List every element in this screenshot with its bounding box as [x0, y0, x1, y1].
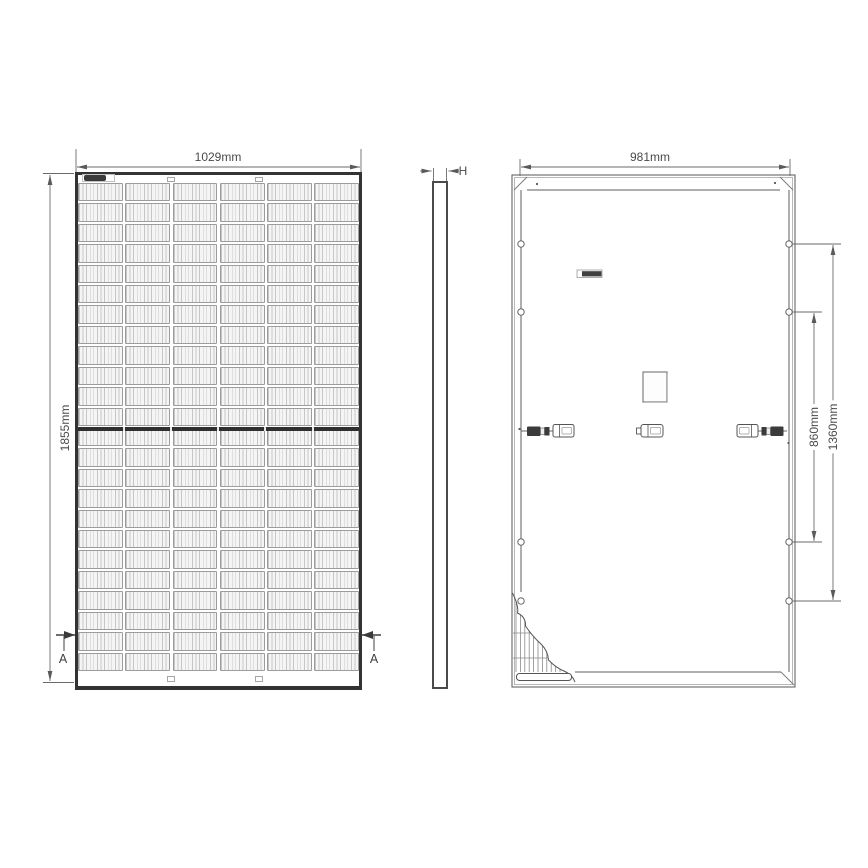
solar-cell — [267, 305, 312, 323]
solar-cell — [314, 285, 359, 303]
solar-cell — [78, 183, 123, 201]
solar-cell — [314, 489, 359, 507]
solar-cell — [125, 183, 170, 201]
solar-cell — [220, 550, 265, 568]
side-view-profile — [433, 182, 447, 688]
solar-cell — [78, 510, 123, 528]
solar-cell — [267, 632, 312, 650]
section-marker-label-right: A — [370, 653, 378, 666]
solar-cell — [314, 244, 359, 262]
solar-cell — [173, 428, 218, 446]
solar-cell — [78, 591, 123, 609]
solar-cell — [78, 224, 123, 242]
center-busbar — [78, 427, 359, 431]
solar-cell — [125, 428, 170, 446]
solar-cell — [78, 305, 123, 323]
hole-span-inner-label: 860mm — [807, 404, 821, 450]
solar-cell — [314, 305, 359, 323]
solar-cell — [78, 326, 123, 344]
solar-cell — [173, 591, 218, 609]
solar-cell — [220, 408, 265, 426]
solar-cell — [314, 571, 359, 589]
frame-clip — [255, 177, 263, 182]
solar-cell — [220, 305, 265, 323]
mount-hole — [786, 309, 792, 315]
solar-cell — [314, 408, 359, 426]
mount-hole — [518, 598, 524, 604]
hole-span-outer-label: 1360mm — [826, 401, 840, 454]
solar-cell — [220, 224, 265, 242]
mounting-holes — [518, 241, 792, 604]
thickness-dimension-label: H — [459, 165, 468, 177]
solar-cell — [314, 591, 359, 609]
solar-cell — [267, 530, 312, 548]
solar-cell — [125, 653, 170, 671]
technical-drawing-canvas: 1029mm 1855mm H A A 981mm 860mm 1360mm — [0, 0, 868, 868]
solar-cell — [314, 367, 359, 385]
solar-cell — [314, 183, 359, 201]
solar-cell — [125, 489, 170, 507]
front-height-dimension-label: 1855mm — [59, 405, 71, 452]
solar-cell — [267, 265, 312, 283]
back-view — [512, 175, 795, 687]
solar-cell — [125, 510, 170, 528]
solar-cell — [220, 367, 265, 385]
solar-cell — [220, 632, 265, 650]
solar-cell — [173, 326, 218, 344]
solar-cell — [78, 367, 123, 385]
solar-cell — [267, 510, 312, 528]
solar-cell — [78, 469, 123, 487]
middle-plug-icon — [641, 425, 663, 438]
solar-cell — [314, 428, 359, 446]
solar-cell — [78, 387, 123, 405]
solar-cell — [314, 448, 359, 466]
mount-hole — [786, 598, 792, 604]
solar-cell — [314, 469, 359, 487]
solar-cell — [267, 571, 312, 589]
section-marker-label-left: A — [59, 653, 67, 666]
solar-cell — [173, 305, 218, 323]
solar-cell — [267, 408, 312, 426]
solar-cell — [314, 653, 359, 671]
solar-cell — [125, 265, 170, 283]
solar-cell — [78, 265, 123, 283]
solar-cell — [125, 367, 170, 385]
solar-cell — [220, 244, 265, 262]
frame-clip — [167, 676, 175, 682]
solar-cell — [314, 612, 359, 630]
cable-connectors — [522, 425, 788, 438]
solar-cell — [78, 653, 123, 671]
solar-cell — [78, 612, 123, 630]
solar-cell — [267, 387, 312, 405]
solar-cell — [125, 571, 170, 589]
solar-cell — [125, 326, 170, 344]
solar-cell — [125, 632, 170, 650]
solar-cell — [220, 571, 265, 589]
mount-hole — [518, 241, 524, 247]
solar-cell — [125, 469, 170, 487]
solar-cell — [173, 448, 218, 466]
solar-cell — [173, 469, 218, 487]
solar-cell — [173, 346, 218, 364]
solar-cell — [125, 244, 170, 262]
solar-cell — [173, 612, 218, 630]
solar-cell — [314, 530, 359, 548]
solar-cell — [173, 203, 218, 221]
solar-cell — [314, 326, 359, 344]
solar-cell — [267, 489, 312, 507]
solar-cell — [314, 346, 359, 364]
solar-cell — [78, 203, 123, 221]
solar-cell — [314, 265, 359, 283]
solar-cell — [220, 489, 265, 507]
mount-hole — [786, 539, 792, 545]
frame-pin-holes — [518, 182, 789, 444]
solar-cell — [267, 203, 312, 221]
solar-cell — [220, 346, 265, 364]
solar-cell — [125, 224, 170, 242]
solar-cell — [78, 489, 123, 507]
solar-cell — [314, 632, 359, 650]
solar-cell — [220, 203, 265, 221]
solar-cell — [78, 244, 123, 262]
solar-cell — [173, 367, 218, 385]
solar-cell — [267, 428, 312, 446]
solar-cell — [220, 326, 265, 344]
junction-box — [643, 372, 668, 403]
solar-cell — [125, 612, 170, 630]
back-width-dimension-label: 981mm — [630, 151, 670, 163]
solar-cell — [314, 510, 359, 528]
solar-cell — [173, 632, 218, 650]
mount-hole — [518, 309, 524, 315]
solar-cell — [267, 591, 312, 609]
solar-cell — [173, 183, 218, 201]
solar-cell — [220, 387, 265, 405]
solar-cell — [125, 346, 170, 364]
solar-cell — [78, 285, 123, 303]
solar-cell — [220, 183, 265, 201]
solar-cell — [173, 224, 218, 242]
solar-cell — [267, 653, 312, 671]
solar-cell — [314, 550, 359, 568]
solar-cell — [78, 408, 123, 426]
solar-cell — [267, 469, 312, 487]
solar-cell — [314, 224, 359, 242]
solar-cell — [173, 285, 218, 303]
mount-hole — [786, 241, 792, 247]
solar-cell — [267, 550, 312, 568]
solar-cell — [267, 346, 312, 364]
solar-cell — [78, 550, 123, 568]
solar-cell — [78, 530, 123, 548]
solar-cell — [125, 550, 170, 568]
solar-cell — [220, 591, 265, 609]
solar-cell — [220, 530, 265, 548]
solar-cell — [314, 387, 359, 405]
mc4-connector-right-icon — [771, 427, 784, 437]
mc4-connector-left-icon — [527, 427, 541, 437]
solar-cell — [125, 591, 170, 609]
solar-cell — [267, 326, 312, 344]
solar-cell — [173, 408, 218, 426]
solar-cell — [78, 346, 123, 364]
back-label-sticker — [577, 270, 602, 278]
solar-cell — [267, 285, 312, 303]
solar-cell — [173, 653, 218, 671]
solar-cell — [125, 408, 170, 426]
solar-cell — [125, 387, 170, 405]
solar-cell — [173, 387, 218, 405]
solar-cell — [125, 285, 170, 303]
solar-cell — [220, 285, 265, 303]
front-width-dimension-label: 1029mm — [195, 151, 242, 163]
frame-clip — [167, 177, 175, 182]
solar-cell — [220, 510, 265, 528]
solar-cell — [267, 367, 312, 385]
solar-cell — [314, 203, 359, 221]
solar-cell — [267, 224, 312, 242]
mount-hole — [518, 539, 524, 545]
solar-cell — [125, 203, 170, 221]
solar-cell — [78, 632, 123, 650]
solar-cell — [125, 530, 170, 548]
solar-cell — [220, 448, 265, 466]
solar-cell — [267, 448, 312, 466]
solar-cell — [173, 550, 218, 568]
solar-cell — [125, 305, 170, 323]
solar-cell — [267, 183, 312, 201]
solar-cell — [220, 469, 265, 487]
solar-cell — [267, 244, 312, 262]
solar-cell — [173, 489, 218, 507]
solar-cell — [78, 571, 123, 589]
frame-clip — [255, 676, 263, 682]
solar-cell — [173, 265, 218, 283]
solar-cell — [125, 448, 170, 466]
nameplate-sticker — [84, 175, 106, 181]
solar-cell — [173, 530, 218, 548]
solar-cell — [220, 653, 265, 671]
solar-cell — [220, 428, 265, 446]
solar-cell — [78, 448, 123, 466]
solar-cell — [220, 265, 265, 283]
solar-cell — [173, 244, 218, 262]
solar-cell — [267, 612, 312, 630]
solar-cell — [173, 510, 218, 528]
solar-cell — [173, 571, 218, 589]
solar-cell — [220, 612, 265, 630]
solar-cell — [78, 428, 123, 446]
